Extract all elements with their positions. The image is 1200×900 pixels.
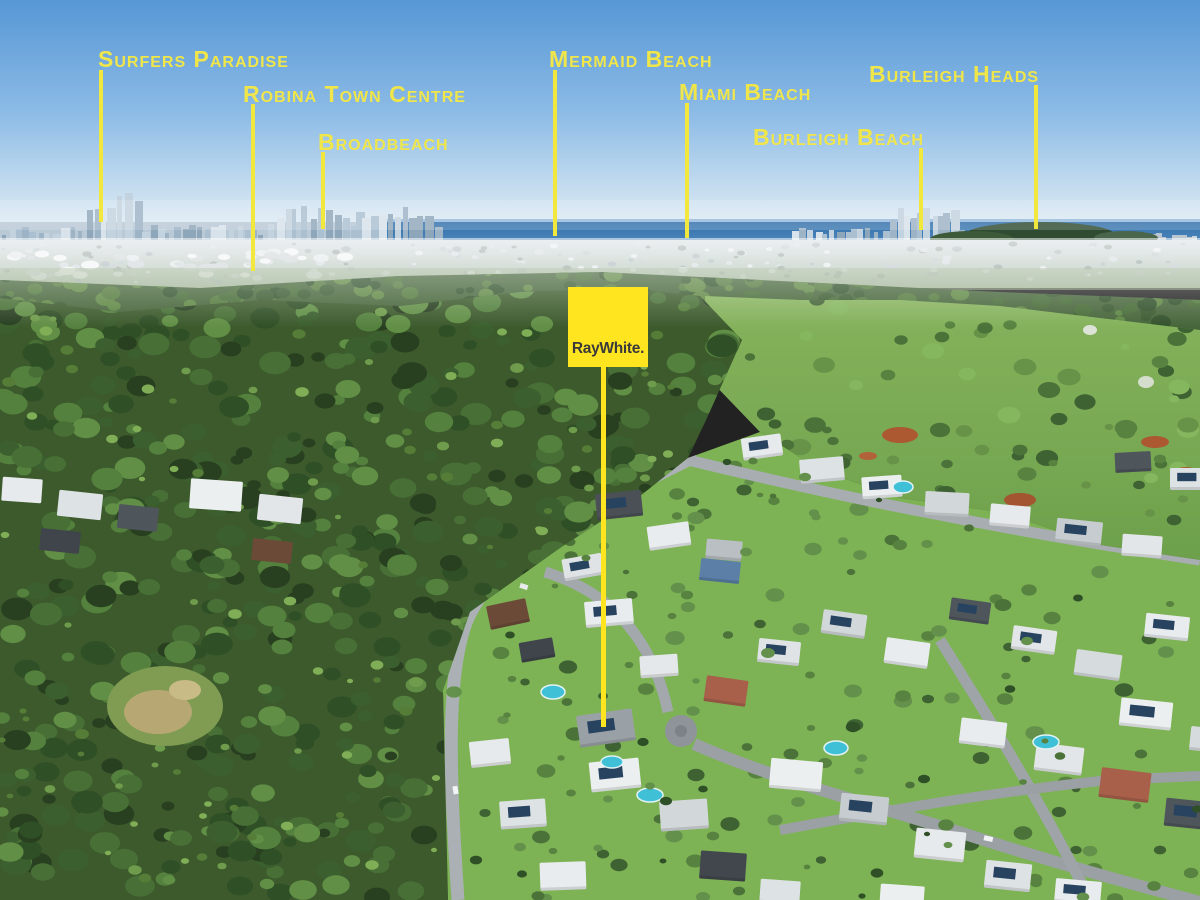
location-label-broadbeach: Broadbeach <box>318 131 449 154</box>
aerial-marketing-photo: Surfers Paradise Robina Town Centre Broa… <box>0 0 1200 900</box>
pointer-line-robina-town-centre <box>251 104 255 271</box>
forest-clearing <box>107 666 223 746</box>
ray-white-wordmark: RayWhite. <box>572 340 644 367</box>
aerial-scene <box>0 0 1200 900</box>
ray-white-logo: RayWhite. <box>568 287 648 367</box>
pointer-line-burleigh-heads <box>1034 85 1038 229</box>
pointer-line-broadbeach <box>321 152 325 229</box>
property-pointer-line <box>601 367 606 727</box>
location-label-robina-town-centre: Robina Town Centre <box>243 83 466 106</box>
pointer-line-miami-beach <box>685 103 689 238</box>
location-label-burleigh-beach: Burleigh Beach <box>753 126 924 149</box>
pointer-line-mermaid-beach <box>553 70 557 236</box>
location-label-mermaid-beach: Mermaid Beach <box>549 48 713 71</box>
location-label-surfers-paradise: Surfers Paradise <box>98 48 289 71</box>
pointer-line-surfers-paradise <box>99 70 103 222</box>
location-label-burleigh-heads: Burleigh Heads <box>869 63 1039 86</box>
pointer-line-burleigh-beach <box>919 148 923 230</box>
location-label-miami-beach: Miami Beach <box>679 81 811 104</box>
